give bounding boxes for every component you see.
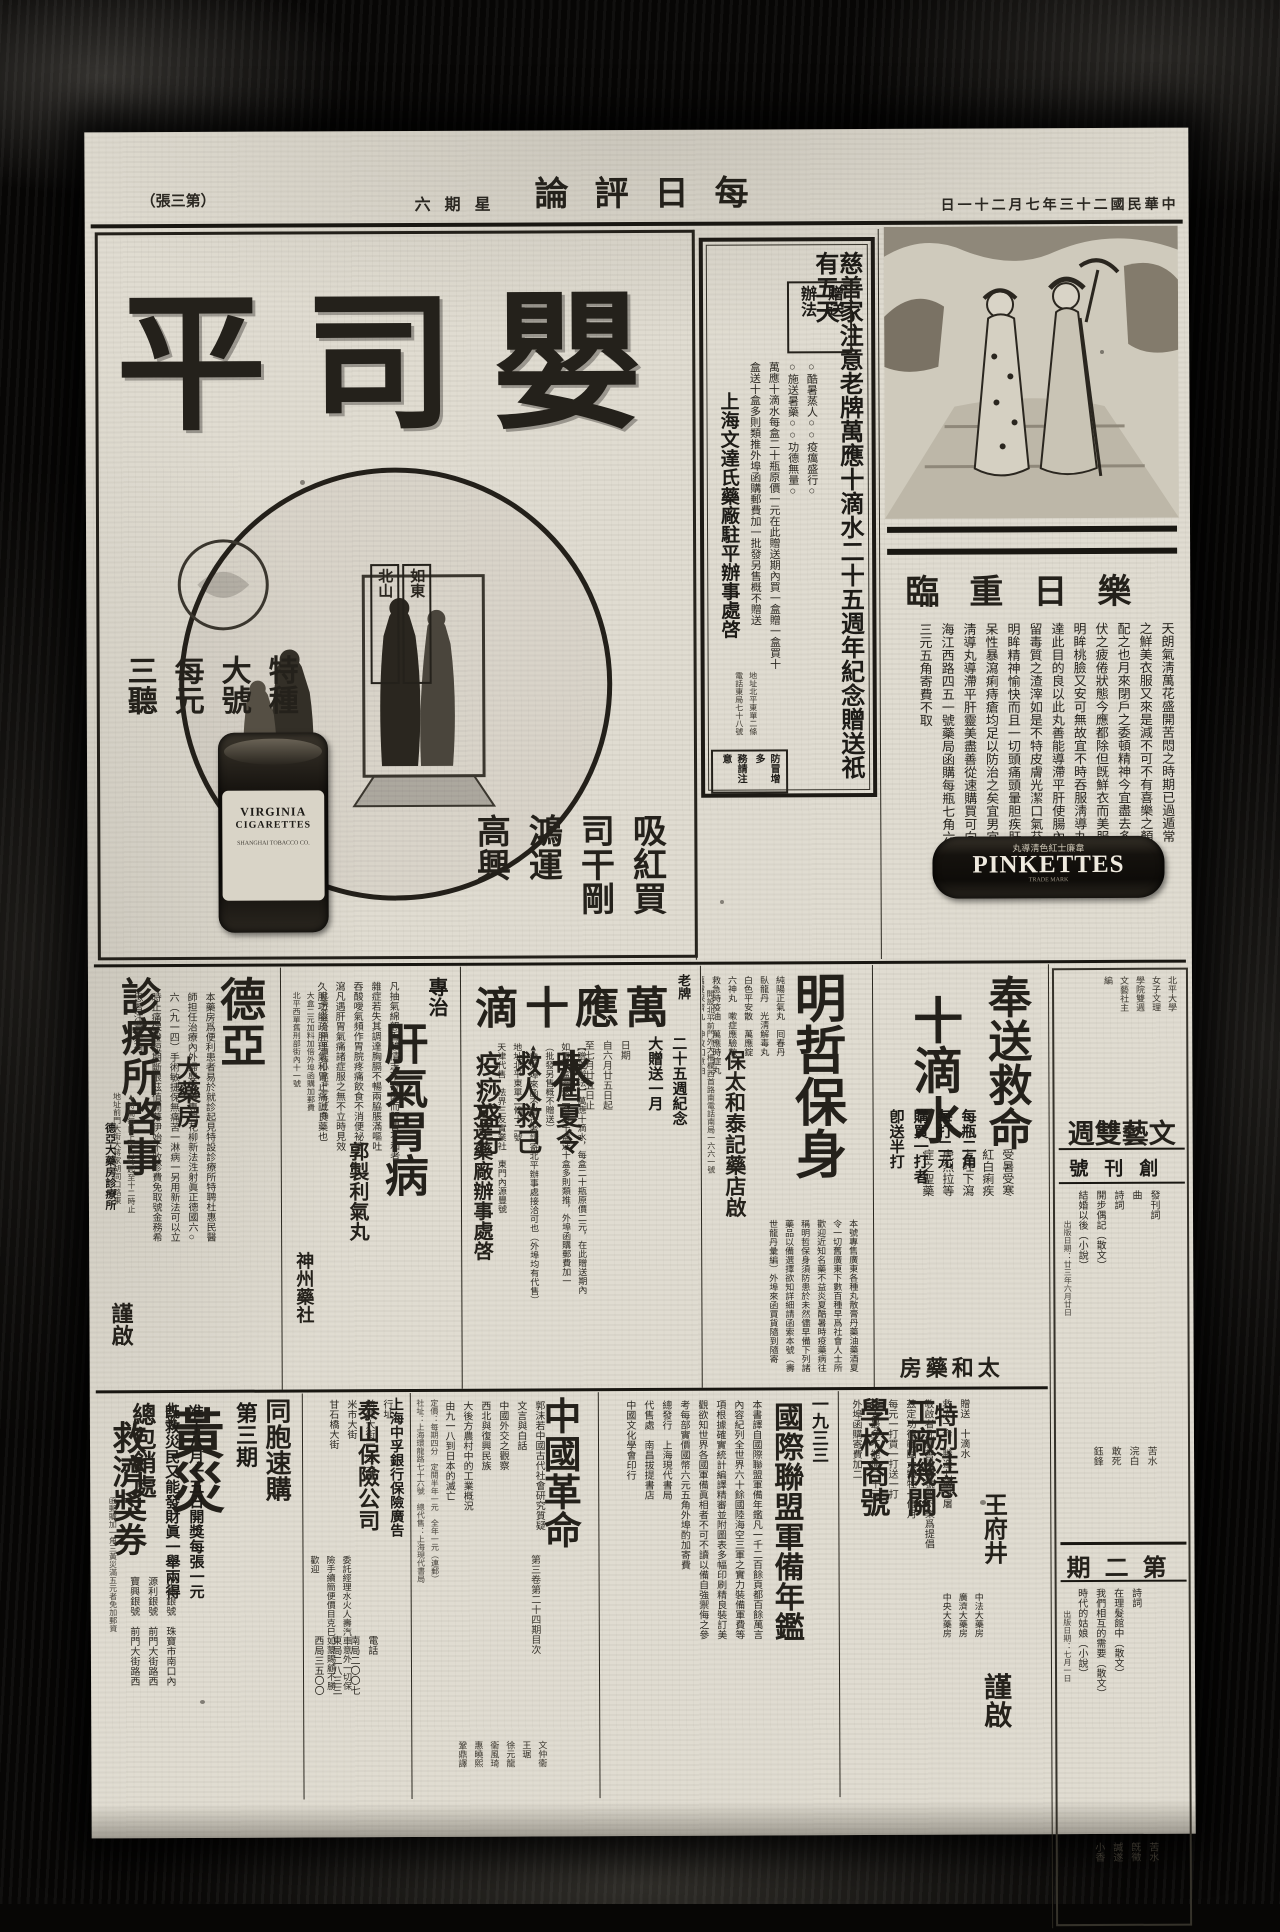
- wanying-anniversary: 二十五週紀念大贈送一月: [641, 1036, 693, 1236]
- text-column: 敢死: [1107, 1446, 1122, 1536]
- wanying-signer-text: 文達藥廠辦事處啓: [468, 1101, 498, 1381]
- text-column: 北山: [370, 564, 400, 684]
- text-column: 每瓶二角: [958, 1109, 980, 1379]
- geming-items: 郭沫若中國古代社會研究質疑文言與白話中國外交之觀察西北與復興民族大後方農村中的工…: [438, 1400, 550, 1740]
- text-column: 廣濟大藥房: [957, 1593, 971, 1793]
- text-column: 本號專售廣東各種丸散膏丹藥油藥酒夏: [847, 1219, 861, 1379]
- text-column: 此藥並無分銷定價每小盒洋一元二角: [319, 991, 332, 1381]
- wenyi-rule-2: [1059, 1182, 1185, 1185]
- gongchang-sign-text: 謹啟: [976, 1672, 1016, 1782]
- circle-label-strips: 如東北山: [367, 564, 435, 684]
- page-bottom-shade: [92, 1800, 1196, 1839]
- pinkettes-rule-2: [887, 548, 1177, 555]
- text-column: 明眸精神愉快而且一切頭痛頭暈胆疾肝火: [1003, 622, 1023, 952]
- text-column: 小香: [1091, 1842, 1106, 1922]
- mingzhe-signer: 保太和泰記藥店啟: [716, 1050, 753, 1380]
- wenyi-issue2-date: 出版日期：七月一日: [1059, 1610, 1077, 1910]
- text-column: 淸導丸導滯平肝靈美盡善從速購買可向上: [959, 623, 979, 953]
- text-column: 源利銀號 前門大街路西: [144, 1576, 160, 1796]
- text-column: 明眸桃臉又安可無故宜不時吞服淸導丸以: [1069, 622, 1089, 952]
- fengsong-ad: 奉送救命 十滴水 受暑受寒紅白痢疾上吐下瀉虎烈拉等症之聖藥 每瓶二角每打二元購買…: [874, 968, 1048, 1387]
- text-column: 每元: [164, 655, 209, 955]
- text-column: 純陽正氣丸 囘春丹: [774, 975, 788, 1255]
- text-column: （批發另售概不贈送）: [543, 1042, 557, 1382]
- deya-sign-word: 謹啟: [101, 1302, 139, 1382]
- mid-band-rule: [94, 960, 1186, 968]
- brand-characters: 嬰司平: [108, 241, 689, 461]
- text-column: 文言與白話: [513, 1400, 529, 1740]
- text-column: 東局二八三三: [328, 1635, 344, 1795]
- scan-speck: [980, 1500, 986, 1505]
- nianjian-book-ad: 一九三三 國際聯盟軍備年鑑 本書譯自國際聯盟軍備年鑑凡一千二百餘頁都百餘萬言內容…: [600, 1393, 838, 1798]
- text-column: 如東: [402, 564, 432, 684]
- text-column: 鞏鼎譯: [456, 1741, 469, 1797]
- text-column: 發刊詞: [1146, 1190, 1162, 1440]
- huangzai-mail-note: 函郵購加一角三黃災滿五元者免加郵資: [104, 1496, 122, 1796]
- pinkettes-ad: 樂日重臨 天朗氣淸萬花盛開苦悶之時期已過遁常之鮮美衣服又來是減不可不有喜樂之顏容…: [882, 226, 1185, 959]
- text-column: 詩詞: [1110, 1190, 1126, 1440]
- text-column: 海江西路四五一號藥局函購每瓶七角六瓶: [937, 623, 957, 953]
- wenyi-rule-3: [1060, 1542, 1186, 1546]
- text-column: 每人最多不能逾二十元: [866, 1399, 883, 1795]
- text-column: 徐元龍: [504, 1741, 517, 1797]
- text-column: 社址：上海環龍路七十六號 總代售：上海現代書局: [415, 1399, 428, 1797]
- text-column: 總發行 上海現代書局: [658, 1400, 675, 1796]
- wanying-method: 【贈送辦法】萬應十滴水，每盒二十瓶原價二元，在此贈送期內如買一盒贈送二盒買十盒送…: [492, 1042, 592, 1382]
- geming-authors: 文仲衞王琚徐元龍衞風琦惠曉熙鞏鼎譯: [453, 1740, 552, 1796]
- ganwei-product: 郭製利氣丸: [341, 1141, 377, 1371]
- text-column: 苦水: [1145, 1842, 1160, 1922]
- scan-speck: [720, 900, 724, 904]
- tin-brand-line3: SHANGHAI TOBACCO CO.: [222, 840, 324, 846]
- text-column: 中國文化學會印行: [622, 1400, 639, 1796]
- text-column: 時止痛保證短期斷根茲值開幕伊始不收診費免取號金務希: [147, 992, 164, 1382]
- text-column: 茲定功德範圍大犧牲一個月: [902, 1399, 919, 1795]
- text-column: 敬啟者凡屬善擧本號無不樂爲提倡: [920, 1399, 937, 1795]
- text-column: 吸紅買: [622, 813, 672, 953]
- text-column: 編: [1102, 976, 1116, 1106]
- huangzai-agents: 正通銀號 珠寶市南口內源利銀號 前門大街路西寶興銀號 前門大街路西: [123, 1576, 181, 1796]
- text-column: 曲: [1128, 1190, 1144, 1440]
- deya-clinic-ad: 德亞 大藥房 診療所啓事 本藥房爲便利患者易於就診起見特設診療所特聘杜惠民醫師担…: [100, 972, 280, 1391]
- publication-date: 中華民國二十三年七月二十一日: [941, 194, 1179, 215]
- text-column: 大後方農村中的工業概況: [459, 1401, 475, 1741]
- text-column: 務請注意: [718, 754, 748, 790]
- geming-price: 定價：每期四分 定閱半年一元 全年一元（連郵）社址：上海環龍路七十六號 總代售：…: [412, 1399, 445, 1797]
- scan-speck: [200, 1700, 205, 1704]
- text-column: 配之也月來閉戶之委頓精神今宜盡去多日: [1113, 622, 1133, 952]
- text-column: 令一切舊廣東下數百種早爲社會人士所: [831, 1219, 845, 1379]
- huangzai-lottery-ad: 同胞速購 第三期 黃災 救濟獎券 准于八月十五日開獎每張一元旣救災民又能發財眞一…: [102, 1395, 302, 1800]
- wenyi-title: 文藝雙週: [1059, 1112, 1185, 1152]
- text-column: 自六月廿五日起: [598, 1040, 614, 1240]
- text-column: 旣徵: [1127, 1842, 1142, 1922]
- ganwei-ad: 專治 肝氣胃病 凡抽氣綿怒呑酸情志不舒因而肝胃不和者雜症若失其調達胸膈不暢兩脇脹…: [282, 971, 460, 1390]
- gongchang-sign: 謹啟: [973, 1672, 1019, 1782]
- text-column: 大贈送一月: [644, 1036, 666, 1236]
- wenyi-publisher: 北平大學女子文理學院雙週文藝社主編: [1099, 976, 1183, 1106]
- mingzhe-signer-text: 保太和泰記藥店啟: [719, 1050, 750, 1380]
- text-column: 觀欲知世界各國軍備眞相者不可不讀以備自強禦侮之參: [694, 1400, 711, 1796]
- huangzai-mail-note-text: 函郵購加一角三黃災滿五元者免加郵資: [107, 1496, 119, 1796]
- text-column: 王琚: [520, 1740, 533, 1796]
- text-column: 天朗氣淸萬花盛開苦悶之時期已過遁常: [1157, 622, 1177, 952]
- text-column: 師担任治療內外婦嬰各科專門花柳新法泩射眞正德國六○: [183, 992, 200, 1382]
- gift-method-label: 贈送辦法: [787, 281, 852, 353]
- text-column: 項根據確實統計編譯精審並附圖表多幅印刷精良裝訂美: [712, 1400, 729, 1796]
- zhongfu-insurance-ad: 上海中孚銀行保險廣告 泰山保險公司 委託經理水火人壽汽車意外一切保險手續簡便價目…: [304, 1395, 410, 1799]
- text-column: 司干剛: [570, 813, 620, 953]
- text-column: 浣白: [1125, 1446, 1140, 1536]
- pinkettes-body: 天朗氣淸萬花盛開苦悶之時期已過遁常之鮮美衣服又來是減不可不有喜樂之顏容配之也月來…: [887, 622, 1180, 953]
- text-column: 電話: [364, 1635, 380, 1795]
- cigarette-tin: VIRGINIA CIGARETTES SHANGHAI TOBACCO CO.: [218, 732, 329, 932]
- counterfeit-warning: 防冒增多務請注意: [711, 749, 788, 793]
- text-column: 二十五週紀念: [668, 1036, 690, 1236]
- text-column: 辦法: [794, 285, 818, 349]
- text-column: 中國外交之觀察: [495, 1401, 511, 1741]
- tin-cap: [224, 738, 322, 764]
- text-column: 考每部實價國幣六元五角外埠酌加寄費: [676, 1400, 693, 1796]
- fengsong-signer: 太和藥房: [884, 1350, 1004, 1383]
- text-column: 臥龍丹 光淸解毒丸: [758, 975, 772, 1255]
- text-column: 三聽: [117, 655, 162, 955]
- ganwei-shop: 神州藥社: [287, 1251, 320, 1381]
- newspaper-scan: { "header": { "date": "中華民國二十三年七月二十一日", …: [0, 0, 1280, 1904]
- text-column: 本書譯自國際聯盟軍備年鑑凡一千二百餘頁都百餘萬言: [748, 1399, 765, 1795]
- wenyi-issue2-authors: 苦水旣徵諴遂小香: [1088, 1842, 1163, 1922]
- tin-brand-line2: CIGARETTES: [222, 819, 324, 830]
- text-column: 代售處 南昌拔提書店: [640, 1400, 657, 1796]
- text-column: 三元五角寄費不取: [915, 623, 935, 953]
- pinkettes-logo-tube: 韋廉士紅色淸導丸 PINKETTES TRADE MARK: [932, 836, 1164, 899]
- text-column: 歡迎近知名藥不益炎夏酷暑時疫藥病往: [815, 1219, 829, 1379]
- charity-ad: 慈善家注意老牌萬應十滴水二十五週年紀念贈送祇有五天 贈送辦法 ○酷暑蒸人○○疫癘…: [699, 237, 877, 798]
- slogan-columns: 吸紅買司干剛鴻運高興: [463, 813, 675, 954]
- gongchang-notice-ad: 工廠機關學校商號 特別注意 贈送 十滴水救人一命 勝造七級浮屠敬啟者凡屬善擧本號…: [840, 1392, 1050, 1797]
- mingzhe-address-text: 開設北平前門外大柵欄西首路南電話南局一六六一號: [705, 990, 718, 1370]
- wanying-signer: 文達藥廠辦事處啓: [465, 1101, 501, 1381]
- fengsong-offer: 每瓶二角每打二元購買一打者卽送半打: [883, 1109, 983, 1379]
- text-column: 高興: [466, 814, 516, 954]
- ganwei-product-name: 郭製利氣丸: [344, 1141, 374, 1371]
- pinkettes-trademark: TRADE MARK: [933, 876, 1165, 883]
- text-column: 日期: [616, 1040, 632, 1240]
- text-column: 定價：每期四分 定閱半年一元 全年一元（連郵）: [429, 1399, 442, 1797]
- text-column: 呆性暴瀉痢痔瘡均足以防治之矣宜男宜女: [981, 622, 1001, 952]
- wanying-ad: 老牌 萬應十滴水 二十五週紀念大贈送一月 日期自六月廿五日起至七月廿五日止 時屆…: [462, 970, 700, 1389]
- text-column: 惠曉熙: [472, 1741, 485, 1797]
- text-column: 伏之疲倦狀態今應都除但旣鮮衣而美服矣: [1091, 622, 1111, 952]
- text-column: 每元一打買一打送一打: [884, 1399, 901, 1795]
- nianjian-body: 本書譯自國際聯盟軍備年鑑凡一千二百餘頁都百餘萬言內容紀列全世界六十餘國陸海空三軍…: [606, 1399, 768, 1796]
- cigarette-ad: 嬰司平 如東北山 特種大號每元三聽 VIRGI: [95, 230, 698, 961]
- zhongfu-phone: 電話南局二〇〇七東局二八三三西局三五〇〇: [307, 1635, 383, 1795]
- text-column: 留毒質之渣滓如是不特皮膚光潔口氣芬芳: [1025, 622, 1045, 952]
- pinkettes-rule-1: [887, 526, 1177, 533]
- text-column: 苦水: [1143, 1446, 1158, 1536]
- tin-brand-line1: VIRGINIA: [222, 804, 324, 819]
- scan-speck: [1100, 350, 1104, 354]
- text-column: 米市大街: [343, 1399, 359, 1639]
- deya-sign-word-text: 謹啟: [104, 1302, 136, 1382]
- text-column: 女子文理: [1150, 976, 1164, 1106]
- wenyi-issue1-authors: 苦水浣白敢死鈺鋒: [1086, 1446, 1161, 1536]
- masthead: 每日評論: [504, 165, 804, 215]
- wenyi-issue1-date: 出版日期：廿三年六月廿日: [1059, 1220, 1077, 1520]
- text-column: 寶興銀號 前門大街路西: [126, 1576, 142, 1796]
- wenyi-issue2-label: 第二期: [1060, 1548, 1186, 1584]
- text-column: 西局三五〇〇: [310, 1635, 326, 1795]
- text-column: 卽送半打: [886, 1109, 908, 1379]
- text-column: 郭沫若中國古代社會研究質疑: [531, 1400, 547, 1740]
- text-column: 贈送: [821, 285, 845, 349]
- text-column: 世龍丹彙編）外埠來函買貨隨到隨寄: [767, 1219, 781, 1379]
- text-column: 甘石橋大街: [325, 1399, 341, 1639]
- weekday: 星期六: [415, 191, 505, 215]
- text-column: 南局二〇〇七: [346, 1635, 362, 1795]
- text-column: 藥品以備選擇欲知詳細請函索本號（壽: [783, 1219, 797, 1379]
- wenyi-issue2-date-text: 出版日期：七月一日: [1062, 1610, 1074, 1910]
- pinkettes-headline: 樂日重臨: [903, 564, 1163, 614]
- text-column: 諴遂: [1109, 1842, 1124, 1922]
- text-column: 【贈送辦法】萬應十滴水，每盒二十瓶原價二元，在此贈送期內: [575, 1042, 589, 1382]
- text-column: 地址北平東單二條十二號: [511, 1043, 525, 1383]
- text-column: 中央大藥房: [941, 1593, 955, 1793]
- text-column: 防冒增多: [751, 753, 781, 789]
- text-column: 衞風琦: [488, 1741, 501, 1797]
- text-column: 達此目的良以此丸善能導滯平肝使腸內不: [1047, 622, 1067, 952]
- text-column: 西北與復興民族: [477, 1401, 493, 1741]
- text-column: ▲發外埠來函不贈送者請寄北平辦事處接洽可也（外埠均有代售）: [527, 1042, 541, 1382]
- wenyi-issue1-date-text: 出版日期：廿三年六月廿日: [1062, 1220, 1074, 1520]
- tin-label: VIRGINIA CIGARETTES SHANGHAI TOBACCO CO.: [222, 790, 324, 900]
- text-column: 稱明哲保身須防患於未然儘早備下列諸: [799, 1219, 813, 1379]
- text-column: 鈺鋒: [1089, 1446, 1104, 1536]
- text-column: 六（九一四）手術敏捷保無痛苦一淋病一另用新法可以立: [165, 992, 182, 1382]
- text-column: 如買一盒贈送二盒買十盒送十盒多則類推，外埠函購郵費加一: [559, 1042, 573, 1382]
- text-column: 文藝社主: [1118, 976, 1132, 1106]
- geming-journal-ad: 中國革命 第三卷第二十四期目次 郭沫若中國古代社會研究質疑文言與白話中國外交之觀…: [412, 1394, 598, 1799]
- text-column: ○施送暑藥○○功德無量○: [784, 361, 802, 761]
- text-column: 行址: [379, 1399, 395, 1639]
- nianjian-title: 國際聯盟軍備年鑑: [760, 1401, 812, 1791]
- text-column: 購買一打者: [910, 1109, 932, 1379]
- text-column: 每打二元: [934, 1109, 956, 1379]
- pinkettes-logo-text: PINKETTES: [932, 854, 1164, 878]
- text-column: 受暑受寒: [1000, 1148, 1018, 1378]
- text-column: 凡抽氣綿怒呑酸情志不舒因而肝胃不和者: [385, 981, 402, 1381]
- text-column: 本藥房爲便利患者易於就診起見特設診療所特聘杜惠民醫: [201, 992, 218, 1382]
- text-column: 正通銀號 珠寶市南口內: [162, 1576, 178, 1796]
- text-column: 內容紀列全世界六十餘國陸海空三軍之實力裝備軍費等: [730, 1400, 747, 1796]
- text-column: 文仲衞: [536, 1740, 549, 1796]
- text-column: 之鮮美衣服又來是減不可不有喜樂之顏容: [1135, 622, 1155, 952]
- garden-walk-illustration: [884, 226, 1179, 519]
- nianjian-title-text: 國際聯盟軍備年鑑: [763, 1401, 809, 1791]
- mingzhe-ad: 明哲保身 純陽正氣丸 囘春丹臥龍丹 光淸解毒丸白色平安散 萬應錠六神丸 嗽症應驗…: [702, 969, 872, 1388]
- wenyi-issue1-items: 發刊詞曲詩詞開步偶記（散文）結婚以後（小說）: [1071, 1190, 1165, 1440]
- text-column: 外埠函購寄費加二: [848, 1399, 865, 1795]
- text-column: 鴻運: [518, 813, 568, 953]
- newspaper-page: （第三張） 星期六 每日評論 中華民國二十三年七月二十一日 嬰司平 如東北山: [84, 128, 1195, 1839]
- text-column: ○酷暑蒸人○○疫癘盛行○: [803, 361, 821, 761]
- wenyi-issue1-label: 創刊號: [1059, 1154, 1185, 1182]
- text-column: 開步偶記（散文）: [1092, 1190, 1108, 1440]
- zhongfu-address: 行址前外大街一六二號米市大街甘石橋大街: [322, 1399, 398, 1639]
- scan-speck: [300, 480, 305, 485]
- text-column: 北平大學: [1166, 976, 1180, 1106]
- text-column: 萬應十滴水每盒二十瓶原價一元在此贈送期內買一盒贈一盒買十: [765, 361, 783, 761]
- ganwei-shop-name: 神州藥社: [290, 1251, 317, 1381]
- sheet-number: （第三張）: [141, 190, 216, 211]
- wenyi-journal-ad: 北平大學女子文理學院雙週文藝社主編 文藝雙週 創刊號 發刊詞曲詩詞開步偶記（散文…: [1052, 968, 1192, 1927]
- text-column: 學院雙週: [1134, 976, 1148, 1106]
- text-column: 准于八月十五日開獎每張一元: [185, 1404, 208, 1800]
- text-column: 前外大街一六二號: [361, 1399, 377, 1639]
